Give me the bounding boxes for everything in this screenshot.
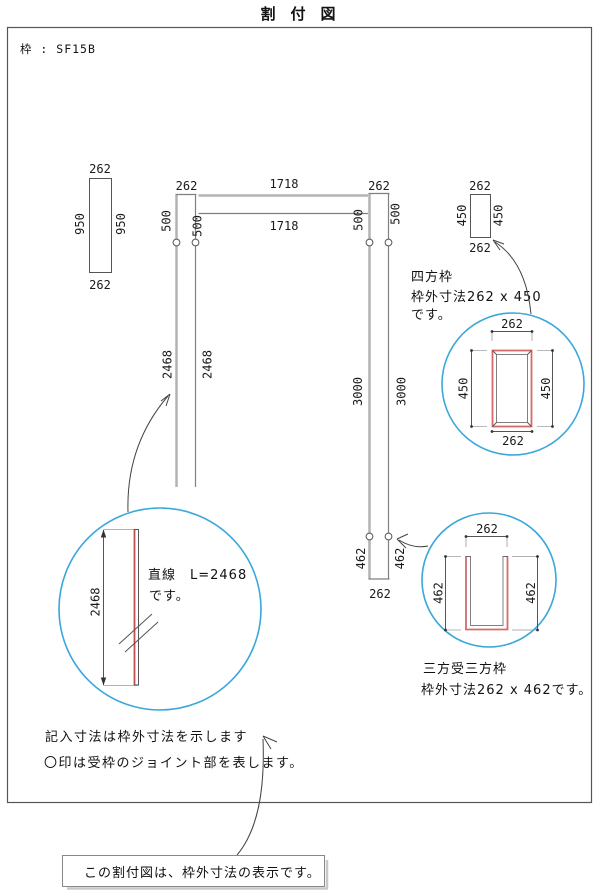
arrow-straight-detail (128, 394, 170, 512)
bar-950-dim-top: 262 (89, 162, 111, 176)
bar-950-dim-right: 950 (114, 213, 128, 235)
right-member-bottom-width-dim: 262 (369, 587, 391, 601)
dim-end (506, 535, 509, 538)
drawing-title: 割 付 図 (260, 5, 335, 23)
straight-piece-length-dim: 2468 (89, 588, 103, 617)
shiho-waku-symbol-outline (471, 195, 491, 238)
shiho-waku-caption-3: です。 (411, 308, 452, 323)
shiho-waku-caption-1: 四方枠 (411, 269, 453, 285)
top-rail-inner-span-dim: 1718 (270, 219, 299, 233)
right-member-bottom-joint-offset-inner: 462 (393, 548, 407, 570)
shiho-waku-detail-circle: 262 450 450 262 (442, 313, 584, 455)
straight-piece-detail-circle: 2468 直線 L=2468 です。 (59, 508, 261, 710)
dim-end (470, 425, 473, 428)
shiho-waku-symbol: 262 450 450 262 四方枠 枠外寸法262 x 450 です。 (411, 179, 542, 323)
shiho-waku-caption-2: 枠外寸法262 x 450 (411, 290, 542, 305)
straight-piece-caption-1: 直線 L=2468 (148, 567, 247, 583)
sanpo-waku-caption-1: 三方受三方枠 (423, 661, 507, 677)
right-member-length-outer: 3000 (351, 377, 365, 406)
bar-950-outline (90, 179, 112, 273)
arrow-footer-note (237, 736, 277, 855)
drawing-page: 割 付 図 枠 : SF15B 262 950 950 262 262 1718 (0, 0, 600, 893)
joint-mark (385, 533, 392, 540)
dim-end (551, 349, 554, 352)
shiho-symbol-dim-left: 450 (455, 205, 469, 227)
left-member-length-outer: 2468 (161, 350, 175, 379)
left-member-joint-offset-outer: 500 (160, 210, 174, 232)
dim-end (536, 555, 539, 558)
right-member-width-dim: 262 (368, 179, 390, 193)
left-member-joint-offset-inner: 500 (191, 215, 205, 237)
shiho-detail-dim-left: 450 (457, 378, 471, 400)
frame-spec-label: 枠 : SF15B (20, 42, 96, 56)
dim-end (465, 535, 468, 538)
joint-mark (385, 239, 392, 246)
bar-950-dim-left: 950 (73, 213, 87, 235)
note-line-2: 〇印は受枠のジョイント部を表します。 (44, 756, 304, 771)
dim-end (491, 430, 494, 433)
dim-end (444, 629, 447, 632)
shiho-detail-frame-outer (493, 351, 532, 427)
sanpo-waku-caption-2: 枠外寸法262 x 462です。 (421, 683, 592, 698)
left-member-width-dim: 262 (176, 179, 198, 193)
sanpo-detail-dim-left: 462 (432, 582, 446, 604)
straight-piece-caption-2: です。 (149, 589, 190, 604)
right-member-joint-offset-inner: 500 (389, 203, 403, 225)
top-rail-outer-span-dim: 1718 (270, 177, 299, 191)
note-line-1: 記入寸法は枠外寸法を示します (45, 729, 248, 745)
shiho-detail-dim-right: 450 (539, 378, 553, 400)
joint-mark (192, 239, 199, 246)
shiho-symbol-dim-bottom: 262 (469, 241, 491, 255)
bar-950-dim-bottom: 262 (89, 278, 111, 292)
joint-mark (173, 239, 180, 246)
joint-mark (366, 239, 373, 246)
dim-end (551, 425, 554, 428)
dim-end (531, 430, 534, 433)
footer-note-box: この割付図は、枠外寸法の表示です。 (63, 856, 329, 889)
shiho-detail-dim-bottom: 262 (502, 434, 524, 448)
sanpo-detail-channel-outer (466, 557, 508, 630)
sanpo-waku-detail-circle: 262 462 462 (422, 513, 556, 647)
bar-950-figure: 262 950 950 262 (73, 162, 128, 292)
joint-mark (366, 533, 373, 540)
right-member-bottom-joint-offset-outer: 462 (354, 548, 368, 570)
dim-end (531, 330, 534, 333)
right-member-joint-offset-outer: 500 (352, 209, 366, 231)
right-member-length-inner: 3000 (395, 377, 409, 406)
arrow-sanpo-detail (397, 534, 428, 548)
dim-end (536, 629, 539, 632)
footer-note-text: この割付図は、枠外寸法の表示です。 (84, 865, 321, 881)
left-member-length-inner: 2468 (201, 350, 215, 379)
shiho-symbol-dim-right: 450 (492, 205, 506, 227)
shiho-symbol-dim-top: 262 (469, 179, 491, 193)
shiho-detail-dim-top: 262 (501, 317, 523, 331)
sanpo-detail-dim-right: 462 (524, 582, 538, 604)
sanpo-detail-dim-top: 262 (476, 522, 498, 536)
dim-end (444, 555, 447, 558)
dim-end (491, 330, 494, 333)
dim-end (470, 349, 473, 352)
